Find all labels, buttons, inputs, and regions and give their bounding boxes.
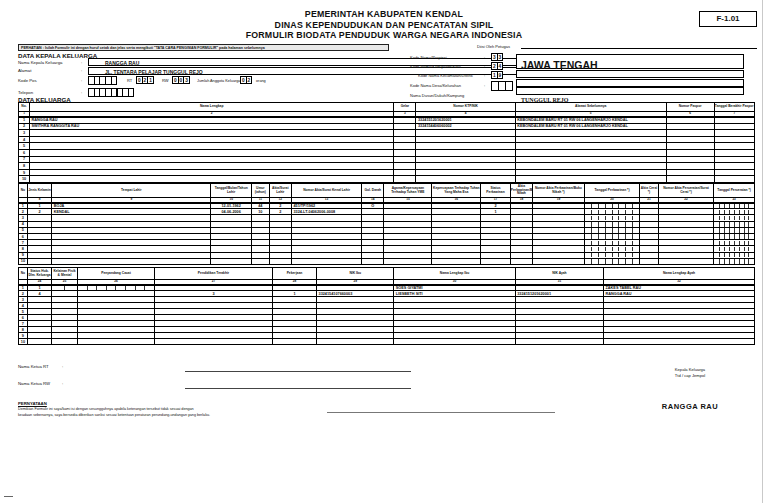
date-boxes	[715, 247, 754, 252]
telepon-box	[128, 88, 135, 97]
form-title-block: PEMERINTAH KABUPATEN KENDAL DINAS KEPEND…	[0, 9, 768, 41]
cell	[584, 209, 639, 215]
cell	[416, 150, 515, 157]
column-header: Gol. Darah	[362, 184, 384, 198]
date-box-cell	[625, 216, 632, 221]
ketua-rw-line	[185, 388, 411, 389]
table-row: 10	[19, 176, 755, 183]
column-header: Nama Lengkap	[30, 103, 394, 112]
column-header: Tempat Lahir	[52, 184, 211, 198]
date-box-cell	[748, 259, 753, 264]
title-line-2: DINAS KEPENDUDUKAN DAN PENCATATAN SIPIL	[0, 20, 768, 31]
kode-digit: 3	[497, 53, 504, 61]
date-box-cell	[612, 210, 619, 215]
header-row: NoStatus Hub. Dlm. KeluargaKelainan Fisi…	[19, 268, 755, 280]
cell	[584, 234, 639, 240]
date-box-cell	[625, 247, 632, 252]
cell	[211, 258, 252, 264]
date-box-cell	[748, 222, 753, 227]
cell	[30, 130, 394, 137]
table-row: 1RANGGA RAU3324151201620001KEBONDALEM BA…	[19, 117, 755, 124]
kode-kabupaten-label: Kode Nama/Kabupaten/Kota	[410, 64, 461, 69]
date-boxes	[53, 286, 77, 291]
cell	[533, 258, 585, 264]
date-box-cell	[598, 228, 605, 233]
date-box-cell	[64, 286, 76, 291]
column-header: Tanggal Berakhir Paspor	[714, 103, 755, 112]
cell: 7	[19, 156, 30, 163]
table-row: 10	[19, 339, 755, 345]
date-box-cell	[598, 259, 605, 264]
scan-artifact	[762, 0, 763, 503]
date-box-cell	[748, 210, 753, 215]
cell: 9	[19, 169, 30, 176]
rt-boxes: 021	[136, 76, 153, 84]
date-box-cell	[618, 222, 625, 227]
cell: KEBONDALEM BARU RT 01 RW 06 LANGENHARJO …	[515, 123, 666, 130]
date-box-cell	[618, 204, 625, 209]
date-box-cell	[618, 259, 625, 264]
column-header: NIK Ayah	[515, 268, 603, 280]
cell	[714, 130, 755, 137]
petugas-heading-line	[521, 48, 757, 49]
date-box-cell	[605, 259, 612, 264]
date-box-cell	[625, 210, 632, 215]
table-row: 5	[19, 143, 755, 150]
signature-line	[327, 412, 555, 413]
cell	[251, 258, 269, 264]
jumlah-suffix: orang	[256, 79, 266, 83]
table-row: 8	[19, 163, 755, 170]
colon: :	[81, 60, 82, 65]
ketua-rw-label: Nama Ketua RW	[18, 381, 50, 386]
cell	[584, 240, 639, 246]
date-box-cell	[632, 204, 639, 209]
colon: :	[484, 73, 485, 78]
cell	[394, 169, 416, 176]
column-header: Tanggal/Bulan/Tahun Lahir	[211, 184, 252, 198]
petugas-heading: Diisi Oleh Petugas	[477, 44, 510, 49]
signature-method: Ttd / cap Jempol	[615, 373, 765, 379]
cell	[515, 176, 666, 183]
date-box-cell	[135, 286, 145, 291]
cell	[384, 258, 432, 264]
cell	[416, 163, 515, 170]
table-row: 3	[19, 130, 755, 137]
column-header: Nomor KTP/NIK	[416, 103, 515, 112]
alamat-label: Alamat	[18, 68, 31, 73]
date-box-cell	[612, 234, 619, 239]
date-boxes	[585, 222, 638, 227]
table-row: 7	[19, 156, 755, 163]
date-box-cell	[632, 228, 639, 233]
date-box-cell	[748, 241, 753, 246]
cell	[584, 215, 639, 221]
date-box-cell	[78, 286, 87, 291]
colon: :	[81, 68, 82, 73]
cell	[510, 258, 532, 264]
cell: KEBONDALEM BARU RT 01 RW 06 LANGENHARJO …	[515, 117, 666, 124]
biodata-kelahiran-table-mount: NoJenis KelaminTempat LahirTanggal/Bulan…	[18, 183, 755, 265]
cell: 10	[19, 176, 30, 183]
telepon-boxes	[88, 88, 134, 97]
cell	[77, 285, 154, 291]
cell	[714, 143, 755, 150]
cell	[515, 339, 603, 345]
date-box-cell	[53, 286, 64, 291]
column-header: Agama/Kepercayaan Terhadap Tuhan YME	[384, 184, 432, 198]
date-box-cell	[748, 216, 753, 221]
date-boxes	[715, 216, 754, 221]
cell	[714, 156, 755, 163]
date-boxes	[585, 228, 638, 233]
cell: 5	[19, 143, 30, 150]
form-code-box: F-1.01	[699, 11, 757, 27]
date-box-cell	[605, 210, 612, 215]
date-box-cell	[632, 247, 639, 252]
cell	[714, 136, 755, 143]
cell	[317, 339, 394, 345]
cell	[30, 143, 394, 150]
date-box-cell	[605, 204, 612, 209]
jumlah-anggota-boxes: 02	[240, 76, 251, 84]
column-header: Nomor Paspor	[666, 103, 714, 112]
cell	[666, 143, 714, 150]
column-header: Tanggal Perkawinan *)	[584, 184, 639, 198]
column-header: Status Perkawinan	[481, 184, 511, 198]
date-box-cell	[605, 247, 612, 252]
column-header: Kepercayaan Terhadap Tuhan Yang Maha Esa	[432, 184, 481, 198]
cell	[52, 285, 78, 291]
date-box-cell	[144, 286, 154, 291]
date-box-cell	[605, 234, 612, 239]
date-box-cell	[591, 259, 598, 264]
date-box-cell	[748, 247, 753, 252]
pernyataan-line-1: Demikian Formulir ini saya/kami isi deng…	[18, 407, 194, 411]
cell	[432, 258, 481, 264]
cell: 2	[19, 123, 30, 130]
cell	[416, 176, 515, 183]
cell	[77, 339, 154, 345]
cell	[416, 130, 515, 137]
cell	[714, 246, 755, 252]
cell	[481, 258, 511, 264]
ketua-rt-label: Nama Ketua RT	[18, 364, 49, 369]
cell	[515, 169, 666, 176]
column-header: NIK Ibu	[317, 268, 394, 280]
column-header: Nomor Akta Perceraian/Surat Cerai *)	[658, 184, 713, 198]
title-line-3: FORMULIR BIODATA PENDUDUK WARGA NEGARA I…	[0, 30, 768, 41]
date-box-cell	[632, 259, 639, 264]
cell	[27, 258, 51, 264]
date-boxes	[585, 247, 638, 252]
kode-desa-label: Kode Nama Desa/Kelurahan	[410, 83, 461, 88]
column-header: Pendidikan Terakhir	[155, 268, 273, 280]
date-boxes	[585, 216, 638, 221]
cell	[584, 203, 639, 209]
rw-boxes: 003	[172, 76, 189, 84]
cell	[52, 339, 78, 345]
pernyataan-line-2: keadaan sebenarnya, saya bersedia diberi…	[18, 413, 210, 417]
cell	[515, 143, 666, 150]
cell	[394, 156, 416, 163]
column-header: Akta Cerai *)	[640, 184, 658, 198]
cell	[52, 258, 211, 264]
cell	[416, 156, 515, 163]
cell	[291, 258, 361, 264]
column-header: No	[19, 268, 28, 280]
date-box-cell	[632, 222, 639, 227]
propinsi-field: JAWA TENGAH	[516, 54, 744, 69]
cell	[714, 215, 755, 221]
cell	[714, 234, 755, 240]
kecamatan-field: KOTA KENDAL	[516, 79, 744, 87]
date-box-cell	[598, 210, 605, 215]
date-box-cell	[591, 228, 598, 233]
date-box-cell	[591, 241, 598, 246]
desa-field: TUNGGUL REJO	[516, 87, 744, 95]
column-header: Penyandang Cacat	[77, 268, 154, 280]
cell	[394, 136, 416, 143]
cell	[515, 136, 666, 143]
cell	[666, 117, 714, 124]
date-box-cell	[612, 241, 619, 246]
cell	[362, 258, 384, 264]
perhatian-notice: PERHATIAN : Isilah Formulir ini dengan h…	[18, 44, 389, 52]
cell	[714, 176, 755, 183]
cell: 3324151201620001	[416, 117, 515, 124]
date-box-cell	[598, 253, 605, 258]
cell	[714, 209, 755, 215]
date-boxes	[715, 222, 754, 227]
date-boxes	[715, 204, 754, 209]
cell	[515, 156, 666, 163]
date-box-cell	[748, 228, 753, 233]
date-boxes	[715, 210, 754, 215]
cell	[666, 163, 714, 170]
cell	[394, 163, 416, 170]
date-box-cell	[612, 216, 619, 221]
date-box-cell	[598, 241, 605, 246]
cell	[30, 163, 394, 170]
cell	[714, 203, 755, 209]
column-header: No	[19, 184, 28, 198]
date-box-cell	[598, 204, 605, 209]
date-box-cell	[612, 259, 619, 264]
title-line-1: PEMERINTAH KABUPATEN KENDAL	[0, 9, 768, 20]
date-box-cell	[115, 286, 125, 291]
date-box-cell	[591, 222, 598, 227]
date-box-cell	[625, 204, 632, 209]
column-header: Nama Lengkap Ibu	[394, 268, 515, 280]
kode-kabupaten-boxes: 24	[491, 62, 502, 70]
cell	[584, 221, 639, 227]
table-row: 2SWITHRA RANGGITA RAU3324154406060002KEB…	[19, 123, 755, 130]
cell	[666, 176, 714, 183]
date-box-cell	[598, 247, 605, 252]
kode-kecamatan-label: Kode Nama Kecamatan/Distrik	[418, 73, 473, 78]
date-box-cell	[632, 216, 639, 221]
date-box-cell	[612, 222, 619, 227]
table-row: 10	[19, 258, 755, 264]
colon: :	[484, 55, 485, 60]
kode-propinsi-label: Kode Nama/Propinsi	[410, 55, 447, 60]
cell	[394, 123, 416, 130]
date-boxes	[715, 234, 754, 239]
date-box-cell	[598, 216, 605, 221]
cell	[394, 117, 416, 124]
cell	[30, 136, 394, 143]
colon: :	[62, 364, 63, 369]
column-header: No.	[19, 103, 30, 112]
cell	[30, 156, 394, 163]
date-box-cell	[748, 234, 753, 239]
cell	[714, 227, 755, 233]
kabupaten-field: KENDAL	[516, 70, 744, 78]
biodata_ortu-table: NoStatus Hub. Dlm. KeluargaKelainan Fisi…	[18, 267, 755, 345]
date-boxes	[585, 259, 638, 264]
cell	[714, 150, 755, 157]
date-box-cell	[598, 234, 605, 239]
cell	[584, 227, 639, 233]
date-box-cell	[618, 241, 625, 246]
cell	[640, 258, 658, 264]
cell	[714, 221, 755, 227]
date-box-cell	[748, 253, 753, 258]
cell	[584, 252, 639, 258]
header-row: No.Nama LengkapGelarNomor KTP/NIKAlamat …	[19, 103, 755, 112]
cell	[658, 258, 713, 264]
cell	[394, 339, 515, 345]
date-box-cell	[591, 204, 598, 209]
date-boxes	[585, 204, 638, 209]
date-box-cell	[618, 216, 625, 221]
date-box-cell	[618, 234, 625, 239]
cell	[714, 169, 755, 176]
biodata-orangtua-table-mount: NoStatus Hub. Dlm. KeluargaKelainan Fisi…	[18, 267, 755, 345]
column-header: Nomor Akta Perkawinan/Buku Nikah *)	[533, 184, 585, 198]
cell	[394, 176, 416, 183]
cell	[416, 136, 515, 143]
kode-digit: 9	[497, 71, 504, 79]
jumlah-anggota-label: Jumlah Anggota Keluarga	[197, 79, 240, 83]
column-header: Tanggal Perceraian *)	[714, 184, 755, 198]
cell: RANGGA RAU	[30, 117, 394, 124]
cell	[272, 339, 316, 345]
pernyataan-title: PERNYATAAN	[18, 401, 47, 406]
date-box-cell	[605, 253, 612, 258]
form-page: PEMERINTAH KABUPATEN KENDAL DINAS KEPEND…	[0, 0, 768, 503]
rt-digit: 1	[147, 76, 154, 84]
column-header: Nama Lengkap Ayah	[604, 268, 755, 280]
ketua-rt-line	[185, 371, 411, 372]
date-boxes	[585, 241, 638, 246]
keluarga-table: No.Nama LengkapGelarNomor KTP/NIKAlamat …	[18, 102, 755, 183]
kode-digit: 4	[497, 62, 504, 70]
cell	[155, 339, 273, 345]
cell	[714, 123, 755, 130]
cell	[27, 339, 51, 345]
column-header: Akta/Surat Lahir	[269, 184, 291, 198]
column-header: Gelar	[394, 103, 416, 112]
cell	[584, 258, 639, 264]
telepon-label: Telepon	[18, 90, 33, 95]
date-box-cell	[618, 247, 625, 252]
cell	[30, 169, 394, 176]
cell	[30, 176, 394, 183]
cell: 3324154406060002	[416, 123, 515, 130]
rw-label: RW	[162, 78, 169, 83]
cell	[269, 258, 291, 264]
date-boxes	[585, 253, 638, 258]
date-box-cell	[632, 210, 639, 215]
cell	[394, 143, 416, 150]
date-box-cell	[612, 228, 619, 233]
date-boxes	[715, 241, 754, 246]
cell: SWITHRA RANGGITA RAU	[30, 123, 394, 130]
biodata_kelahiran-table: NoJenis KelaminTempat LahirTanggal/Bulan…	[18, 183, 755, 265]
kode-propinsi-boxes: 33	[491, 53, 502, 61]
column-header: Alamat Sebelumnya	[515, 103, 666, 112]
column-header: Status Hub. Dlm. Keluarga	[27, 268, 51, 280]
data-keluarga-table-mount: No.Nama LengkapGelarNomor KTP/NIKAlamat …	[18, 102, 755, 183]
kode-kecamatan-boxes: 19	[491, 71, 502, 79]
date-box-cell	[625, 259, 632, 264]
cell	[714, 163, 755, 170]
cell	[666, 150, 714, 157]
date-box-cell	[625, 222, 632, 227]
date-box-cell	[612, 253, 619, 258]
date-boxes	[715, 228, 754, 233]
cell	[666, 130, 714, 137]
kode-desa-boxes	[491, 81, 513, 91]
cell	[416, 169, 515, 176]
jumlah-digit: 2	[246, 76, 253, 84]
date-box-cell	[598, 222, 605, 227]
column-header: Jenis Kelamin	[27, 184, 51, 198]
date-box-cell	[605, 228, 612, 233]
cell	[666, 156, 714, 163]
date-box-cell	[612, 204, 619, 209]
table-row: 6	[19, 150, 755, 157]
signature-block: Kepala Keluarga Ttd / cap Jempol	[615, 367, 765, 379]
column-header: Umur (tahun)	[251, 184, 269, 198]
signature-name: RANGGA RAU	[615, 402, 765, 411]
kepala-keluarga-heading: DATA KEPALA KELUARGA	[18, 52, 97, 59]
date-box-cell	[618, 228, 625, 233]
kodepos-box	[111, 76, 118, 85]
kode-digit	[505, 81, 513, 91]
date-boxes	[585, 210, 638, 215]
cell	[394, 130, 416, 137]
rw-digit: 3	[183, 76, 190, 84]
column-header: Akta Perkawinan/Buku Nikah	[510, 184, 532, 198]
scan-artifact	[4, 496, 13, 497]
nama-kk-label: Nama Kepala Keluarga	[18, 60, 62, 65]
date-boxes	[715, 259, 754, 264]
cell	[515, 150, 666, 157]
header-row: NoJenis KelaminTempat LahirTanggal/Bulan…	[19, 184, 755, 198]
rt-label: RT	[127, 78, 132, 83]
cell: 10	[19, 339, 28, 345]
date-box-cell	[125, 286, 135, 291]
cell: 8	[19, 163, 30, 170]
date-box-cell	[87, 286, 97, 291]
date-box-cell	[96, 286, 106, 291]
date-box-cell	[748, 204, 753, 209]
cell	[666, 123, 714, 130]
cell	[714, 240, 755, 246]
